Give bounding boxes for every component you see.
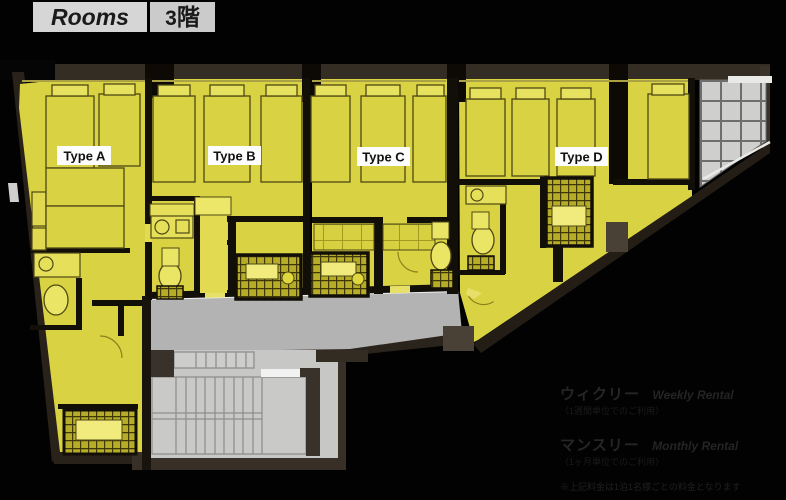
svg-text:Type B: Type B xyxy=(213,149,255,164)
svg-text:Type D: Type D xyxy=(560,150,602,165)
svg-text:Type C: Type C xyxy=(362,150,405,165)
svg-text:Type A: Type A xyxy=(64,149,107,164)
